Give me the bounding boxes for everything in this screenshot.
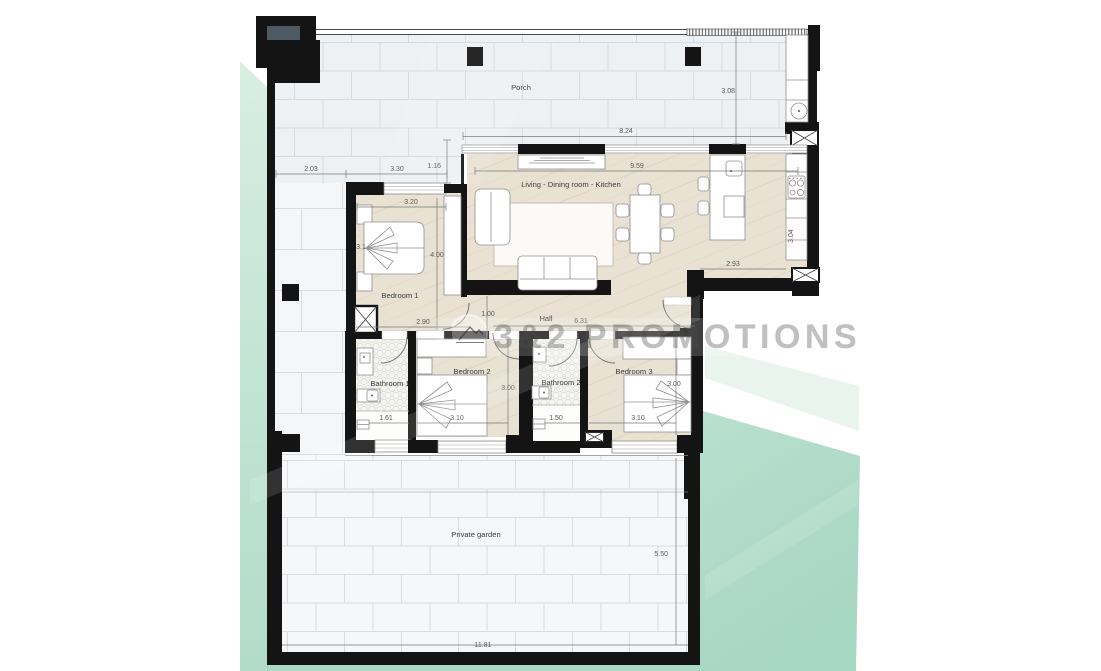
svg-text:1.50: 1.50 xyxy=(549,415,563,422)
svg-text:1.00: 1.00 xyxy=(481,311,495,318)
svg-text:3.04: 3.04 xyxy=(788,229,795,243)
svg-text:Bedroom 3: Bedroom 3 xyxy=(615,367,652,376)
svg-text:8.24: 8.24 xyxy=(619,128,633,135)
svg-text:3.08: 3.08 xyxy=(721,88,735,95)
svg-text:Bedroom 1: Bedroom 1 xyxy=(381,291,418,300)
svg-text:2.93: 2.93 xyxy=(726,261,740,268)
svg-text:Private garden: Private garden xyxy=(451,530,500,539)
svg-text:3.1: 3.1 xyxy=(356,244,366,251)
svg-text:3&2 PROMOTIONS: 3&2 PROMOTIONS xyxy=(494,318,861,356)
svg-text:3.00: 3.00 xyxy=(667,381,681,388)
svg-text:3.10: 3.10 xyxy=(631,415,645,422)
svg-text:9.59: 9.59 xyxy=(630,163,644,170)
svg-text:3.20: 3.20 xyxy=(404,199,418,206)
svg-text:1.61: 1.61 xyxy=(379,415,393,422)
svg-text:Living - Dining room - Kitchen: Living - Dining room - Kitchen xyxy=(521,180,621,189)
svg-text:4.00: 4.00 xyxy=(430,252,444,259)
svg-text:2.90: 2.90 xyxy=(416,319,430,326)
svg-text:2.03: 2.03 xyxy=(304,166,318,173)
svg-text:5.50: 5.50 xyxy=(654,551,668,558)
svg-text:Bathroom 1: Bathroom 1 xyxy=(370,379,409,388)
svg-text:Bedroom 2: Bedroom 2 xyxy=(453,367,490,376)
svg-text:11.81: 11.81 xyxy=(475,642,492,649)
